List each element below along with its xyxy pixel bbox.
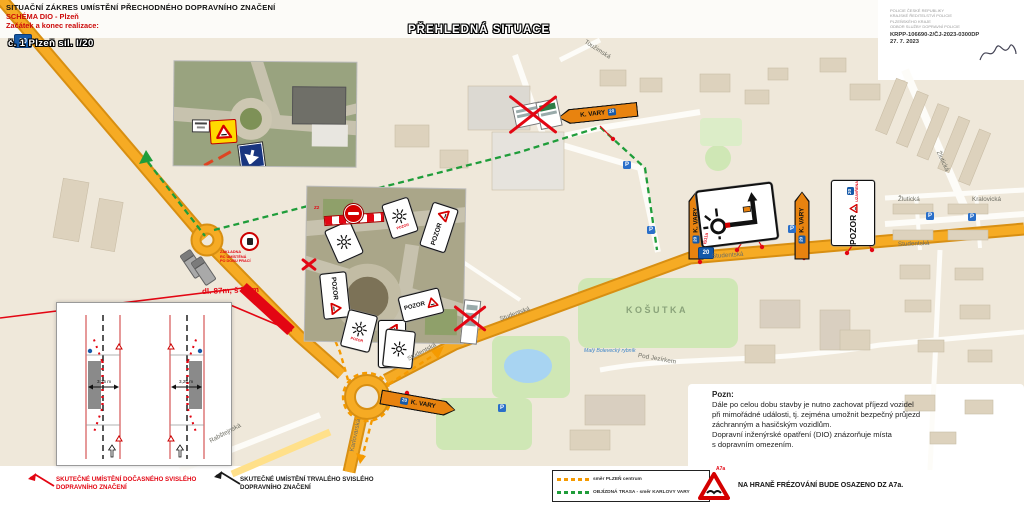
- base-note: ZÁKLADNARC UMÍSTĚNÁPO DOBU PRACÍ: [220, 250, 266, 264]
- green-dash-swatch: [557, 491, 589, 494]
- page-title: PŘEHLEDNÁ SITUACE: [408, 24, 550, 36]
- legend-arrow-black: [212, 468, 242, 486]
- note-block: Pozn: Dále po celou dobu stavby je nutno…: [712, 390, 1022, 450]
- note-line: při mimořádné události, tj. zejména umož…: [712, 410, 1022, 420]
- pozor-sign-inset-w: POZOR: [319, 271, 351, 320]
- drawing-header: SITUAČNÍ ZÁKRES UMÍSTĚNÍ PŘECHODNÉHO DOP…: [6, 3, 275, 30]
- orange-dash-swatch: [557, 478, 589, 481]
- route-legend-detour: OBJÍZDNÁ TRASA - směr KARLOVY VARY: [557, 490, 705, 495]
- legend-perm-sign: SKUTEČNÉ UMÍSTĚNÍ TRVALÉHO SVISLÉHO DOPR…: [240, 476, 405, 492]
- svg-text:3,25 m: 3,25 m: [179, 379, 193, 384]
- signature: [978, 40, 1018, 66]
- pozor-closure-sign: POZOR 20 UZAVŘENA: [831, 180, 875, 246]
- header-line1: SITUAČNÍ ZÁKRES UMÍSTĚNÍ PŘECHODNÉHO DOP…: [6, 3, 275, 12]
- route-legend-box: směr PLZEŇ centrum OBJÍZDNÁ TRASA - směr…: [552, 470, 710, 502]
- a7a-sign-icon: [698, 472, 730, 500]
- header-line2: SCHÉMA DIO - Plzeň: [6, 12, 275, 21]
- street-label: Žlutická: [898, 196, 920, 203]
- note-title: Pozn:: [712, 390, 1022, 400]
- no-entry-sign: [344, 204, 363, 223]
- building-dark: [292, 86, 346, 124]
- roadworks-warning-sign: [209, 119, 237, 145]
- removed-cross-small: [301, 255, 317, 271]
- parking-icon: P: [926, 212, 934, 220]
- street-label: Kralovická: [972, 196, 1001, 203]
- note-line: Dále po celou dobu stavby je nutno zacho…: [712, 400, 1022, 410]
- route-legend-center: směr PLZEŇ centrum: [557, 477, 705, 482]
- removed-cross: [452, 300, 488, 336]
- lake-label: Malý Bolevecký rybník: [584, 348, 636, 354]
- stamp-reference: KRPP-106690-2/ČJ-2023-0300DP: [890, 32, 1022, 40]
- lane-closure-schema: 3,25 m 3,25 m: [57, 303, 231, 465]
- aerial-inset-north: [174, 61, 357, 167]
- building-white: [312, 124, 348, 146]
- district-label: KOŠUTKA: [626, 305, 688, 315]
- parking-icon: P: [968, 213, 976, 221]
- note-line: záchranným a hasičským vozidlům.: [712, 420, 1022, 430]
- removed-cross: [506, 94, 560, 134]
- detour-sign-kvary-east: 20K. VARY: [795, 192, 810, 260]
- svg-text:3,25 m: 3,25 m: [97, 379, 111, 384]
- note-line: s dopravním omezením.: [712, 440, 1022, 450]
- parking-icon: P: [647, 226, 655, 234]
- dio-situation-drawing: 3,25 m 3,25 m: [0, 0, 1024, 507]
- parking-icon: P: [788, 225, 796, 233]
- parking-icon: P: [498, 404, 506, 412]
- street-label: Studentská: [898, 240, 930, 248]
- legend-arrow-red: [26, 470, 56, 488]
- legend-temp-sign: SKUTEČNÉ UMÍSTĚNÍ DOČASNÉHO SVISLÉHO DOP…: [56, 476, 221, 492]
- note-line: Dopravní inženýrské opatření (DIO) znázo…: [712, 430, 1022, 440]
- direction-arrow-sign: [238, 142, 265, 166]
- pond: [504, 349, 552, 383]
- a7a-text: NA HRANĚ FRÉZOVÁNÍ BUDE OSAZENO DZ A7a.: [738, 482, 903, 489]
- police-stamp: POLICIE ČESKÉ REPUBLIKY KRAJSKÉ ŘEDITELS…: [890, 8, 1022, 47]
- small-plate-sign: [192, 119, 210, 132]
- section-badge: č. 1 Plzeň sil. I/20: [8, 38, 94, 49]
- roundabout-works-sign: [382, 329, 416, 370]
- lane-closure-schema-inset: 3,25 m 3,25 m: [56, 302, 232, 466]
- prohibition-sign: [240, 232, 259, 251]
- stamp-org-line: ODBOR SLUŽBY DOPRAVNÍ POLICIE: [890, 24, 1022, 29]
- parking-icon: P: [623, 161, 631, 169]
- z2-label: Z2: [314, 205, 319, 210]
- header-line3: Začátek a konec realizace:: [6, 21, 275, 30]
